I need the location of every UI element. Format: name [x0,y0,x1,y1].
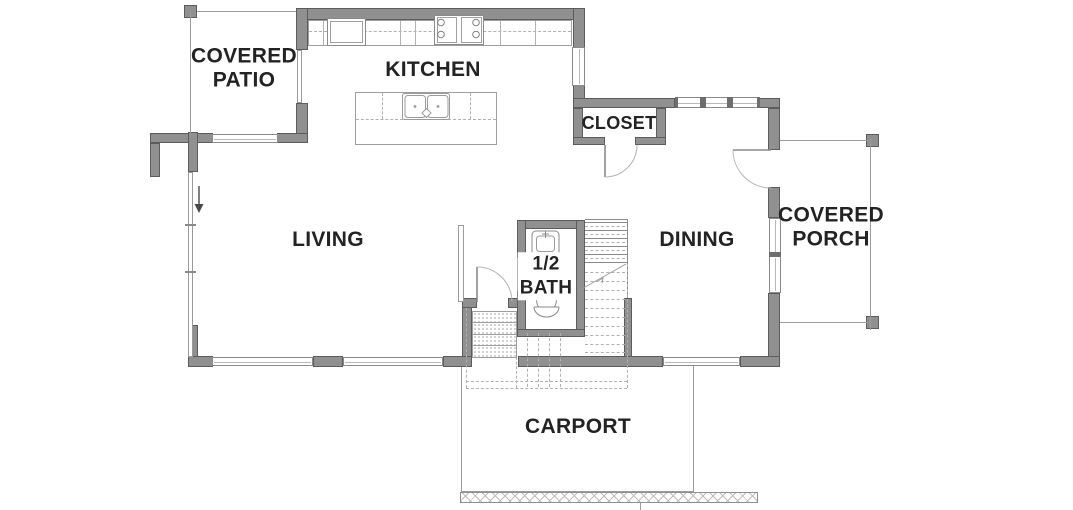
glass-wall-tick [185,224,196,226]
carport-edge [693,366,694,492]
wall-bath [517,220,585,229]
window-dining-right [769,256,781,293]
stair-edge [585,219,627,220]
stair-tread-dash [585,290,625,291]
wall [768,108,780,150]
window-mullion [757,97,760,108]
stair-tread [585,222,627,223]
bath-sink-basin [537,236,555,252]
stair-stringer-dash [538,333,539,387]
wall [277,133,308,143]
island-dash [382,93,383,119]
range-module [461,17,482,43]
stair-tread [585,238,627,239]
window-mullion [727,97,733,108]
stair-overhead-dash [516,357,517,388]
range-module [437,17,457,43]
carport-hatch-curb [460,492,758,503]
window-mullion [675,97,678,108]
toilet-base [534,307,559,317]
wall [188,132,198,172]
wall-closet [573,137,605,145]
glass-wall-living [188,172,193,357]
stair-overhead-dash [627,264,628,388]
window-dining-bottom [663,357,740,366]
wall-entry [462,298,477,308]
stair-tread [585,230,627,231]
carport-edge [461,367,462,492]
stair-tread [585,254,627,255]
stair-tread-dash [585,234,625,235]
closet-door-arc [605,145,637,177]
wall-bath [576,220,585,337]
wall [443,356,472,367]
stair-tread-dash [585,335,625,336]
room-label-living: LIVING [292,228,364,252]
window-kitchen [572,47,585,86]
entry-arrow-head [195,204,204,213]
wall [296,8,308,50]
patio-edge [197,11,296,12]
island-dash [356,119,403,120]
cabinet-divider [535,21,536,45]
wall [573,98,675,108]
window-patio [212,134,278,143]
glass-wall-tick [185,271,196,273]
stair-tread-dash [585,281,625,282]
stair-overhead-dash [466,381,627,382]
stair-tread [585,262,627,263]
refrigerator-inner [330,21,363,43]
stair-tread-dash [585,242,625,243]
wall [313,356,343,367]
stair-overhead-dash [466,388,627,389]
island-dash [448,119,496,120]
window-living [343,357,443,366]
stair-overhead-dash [466,308,467,388]
room-label-half-bath: 1/2 BATH [518,252,575,300]
stair-tread-dash [585,250,625,251]
entry-door-arc [477,267,512,302]
window-mullion [700,97,706,108]
room-label-kitchen: KITCHEN [385,58,480,82]
floor-plan: COVERED PATIO KITCHEN CLOSET LIVING DINI… [0,0,1073,510]
room-label-closet: CLOSET [582,113,657,133]
entry-screen-wall [458,225,464,302]
wall [758,98,780,108]
window-dining-top [675,97,760,108]
wall-closet [635,137,666,145]
wall [518,356,663,367]
stair-break-line [578,264,626,291]
wall-entry [508,298,518,308]
stair-tread [585,246,627,247]
driveway-tick [640,503,641,510]
stair-tread-dash [585,299,625,300]
stair-tread-dash [585,226,625,227]
cabinet-divider [400,21,401,45]
room-label-covered-patio: COVERED PATIO [191,44,297,91]
glass-wall-patio [297,50,302,103]
wall [188,356,213,367]
wall [740,356,780,367]
porch-edge [780,140,868,141]
porch-edge [780,322,868,323]
window-mullion [769,252,781,257]
porch-door-arc [733,150,771,188]
room-label-covered-porch: COVERED PORCH [778,203,884,250]
wall [573,8,585,48]
cabinet-divider [415,21,416,45]
window-living [212,357,313,366]
room-label-carport: CARPORT [525,415,631,439]
stair-tread-dash [585,326,625,327]
wall [150,133,213,143]
stair-tread-dash [585,258,625,259]
cabinet-divider [323,21,324,45]
stoop-step [472,345,517,358]
stair-tread-dash [585,344,625,345]
stair-stringer-dash [549,333,550,387]
stair-tread-dash [585,272,625,273]
island-dash [470,93,471,119]
cabinet-divider [500,21,501,45]
wall-stair [624,298,632,358]
stair-tread-dash [585,352,625,353]
wall [150,143,160,177]
room-label-dining: DINING [659,228,734,252]
stair-stringer-dash [527,333,528,387]
stair-tread-dash [585,308,625,309]
stair-stringer-dash [560,333,561,387]
stair-tread-dash [585,317,625,318]
